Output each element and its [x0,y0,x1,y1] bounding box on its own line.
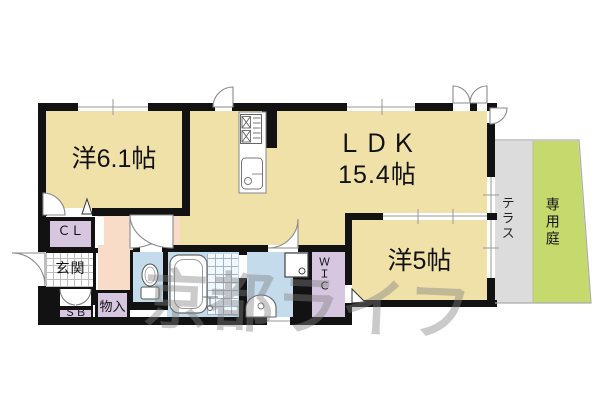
walk-in-closet-label: ＷＩＣ [317,256,329,312]
terrace-label: テラス [500,196,514,258]
washbasin [246,295,276,317]
bathtub [170,255,207,313]
washroom-door-arc [268,219,298,248]
side-door-arc [490,108,507,124]
entrance-door-arc [12,253,45,286]
toilet [141,264,159,299]
entrance-label: 玄関 [46,261,95,276]
ldk-label: ＬＤＫ [310,131,445,157]
private-garden-label: 専用庭 [545,197,560,269]
shoe-cabinet-doors [60,289,91,305]
bedroom1-door-leaf [82,199,92,214]
storage-label: 物入 [95,300,130,314]
room-western-1-label: 洋6.1帖 [46,146,182,172]
kitchen-counter [239,112,266,193]
closet-label: ＣＬ [46,224,95,238]
double-door-arc-right [470,86,487,103]
shoe-box-label: ＳＢ [58,308,93,320]
ldk-size-label: 15.4帖 [305,162,450,188]
floor-plan: 洋6.1帖 ＬＤＫ 15.4帖 洋5帖 ＣＬ 玄関 ＳＢ 物入 ＷＩＣ テラス … [0,0,600,400]
washing-machine [285,253,308,277]
room-western-2-label: 洋5帖 [352,248,487,274]
bedroom1-door-arc [43,193,65,215]
kitchen-sink [242,158,263,189]
double-door-arc-left [453,86,470,103]
bedroom2-door-leaf [352,289,365,303]
kitchen-service-door-arc [213,87,233,107]
